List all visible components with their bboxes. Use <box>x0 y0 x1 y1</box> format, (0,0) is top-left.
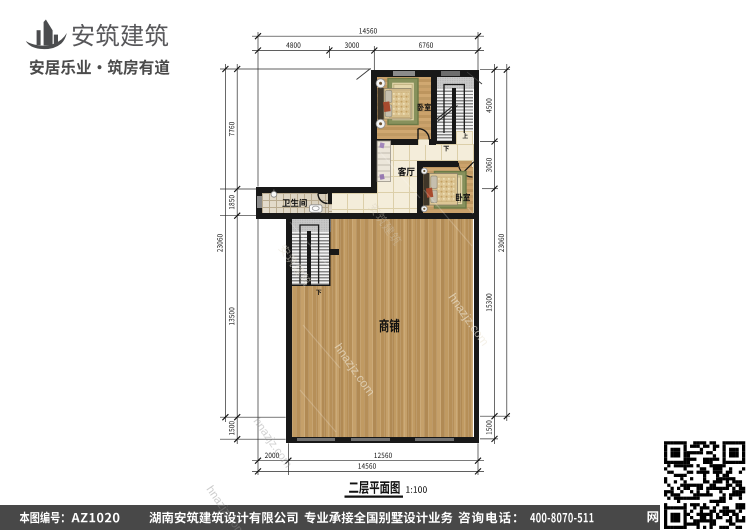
svg-text:hnazjz.com: hnazjz.com <box>446 291 492 349</box>
svg-text:hnazjz.com: hnazjz.com <box>332 341 378 399</box>
